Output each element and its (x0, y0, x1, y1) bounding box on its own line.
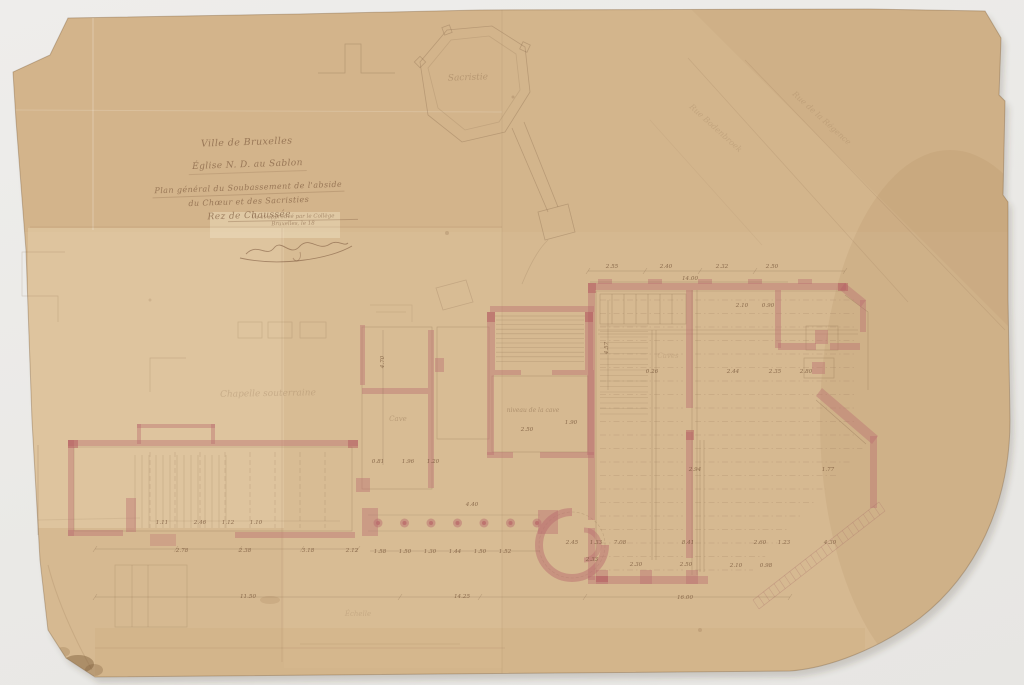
plan-drawing-svg: 2.552.402.322.5014.002.100.900.262.442.3… (0, 0, 1024, 685)
dimension-label: 2.40 (659, 264, 673, 270)
dimension-label: 2.32 (715, 264, 729, 270)
dimension-label: 0.98 (760, 563, 773, 569)
plan-script-label: Sacristie (448, 72, 489, 83)
dimension-label: 1.12 (222, 520, 235, 526)
dimension-label: 1.50 (474, 549, 487, 555)
dimension-label: 16.00 (677, 595, 693, 601)
dimension-label: 1.58 (374, 549, 387, 555)
plan-script-label: Échelle (344, 609, 371, 618)
dimension-label: 11.50 (240, 594, 256, 600)
dimension-label: 1.50 (399, 549, 412, 555)
dimension-label: 2.38 (238, 548, 252, 554)
dimension-label: 1.90 (565, 420, 578, 426)
dimension-label: 7.08 (614, 540, 627, 546)
dimension-label: 1.52 (499, 549, 512, 555)
dimension-label: 2.50 (765, 264, 779, 270)
dimension-label: 2.60 (753, 540, 767, 546)
pier-core (509, 521, 513, 525)
dimension-label: 2.30 (629, 562, 643, 568)
dimension-label: 2.78 (175, 548, 189, 554)
pier-core (482, 521, 486, 525)
dimension-label: 2.12 (345, 548, 359, 554)
dimension-label: 0.90 (762, 303, 775, 309)
dimension-label: 2.50 (679, 562, 693, 568)
pier-core (429, 521, 433, 525)
dimension-label: 2.44 (726, 369, 740, 375)
dimension-label: 1.10 (250, 520, 263, 526)
dimension-label: 14.25 (454, 594, 470, 600)
dimension-label: 1.30 (424, 549, 437, 555)
dimension-label: 14.00 (682, 276, 698, 282)
dimension-label: 0.81 (372, 459, 384, 465)
plan-script-label: niveau de la cave (507, 407, 560, 414)
dimension-label: 2.80 (799, 369, 813, 375)
dimension-label: 2.46 (193, 520, 207, 526)
dimension-label: 2.35 (768, 369, 782, 375)
dimension-label: 1.23 (778, 540, 791, 546)
dimension-label: 1.44 (449, 549, 462, 555)
dimension-label: 1.77 (822, 467, 835, 473)
dimension-label: 2.50 (520, 427, 534, 433)
dimension-label: 1.20 (427, 459, 440, 465)
dimension-label: 1.33 (590, 540, 603, 546)
dimension-label: 3.18 (302, 548, 315, 554)
pier-core (456, 521, 460, 525)
dimension-label: 1.11 (156, 520, 168, 526)
dimension-label: 2.55 (605, 264, 619, 270)
approval-stamp: Vu et approuvé par le Collège Bruxelles,… (228, 213, 358, 228)
dimension-label: 2.10 (729, 563, 743, 569)
dimension-label: 8.41 (682, 540, 694, 546)
plan-script-label: Cave (389, 415, 407, 423)
dimension-label: 4.30 (823, 540, 837, 546)
dimension-label: 2.94 (688, 467, 702, 473)
dimension-label: 2.10 (735, 303, 749, 309)
dimension-label: 1.96 (402, 459, 415, 465)
dimension-label: 0.26 (646, 369, 659, 375)
dimension-label: 4.70 (380, 355, 386, 369)
pier-core (403, 521, 407, 525)
plan-script-label: Chapelle souterraine (220, 388, 316, 400)
dimension-label: 4.40 (465, 502, 479, 508)
archival-scan-stage: 2.552.402.322.5014.002.100.900.262.442.3… (0, 0, 1024, 685)
plan-script-label: Caves (657, 352, 679, 360)
dimension-label: 4.57 (604, 341, 610, 355)
dimension-label: 2.33 (585, 557, 599, 563)
dimension-label: 2.45 (565, 540, 579, 546)
